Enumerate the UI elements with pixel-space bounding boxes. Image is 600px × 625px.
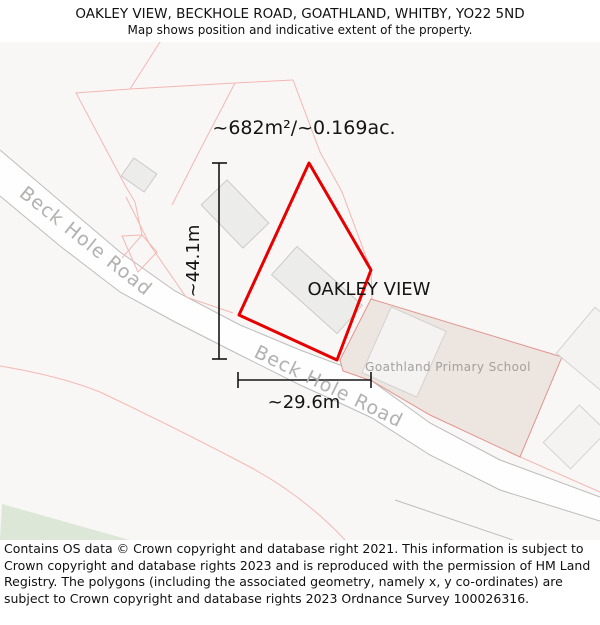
road-edge-extra xyxy=(395,500,513,540)
dim-vertical-label: ~44.1m xyxy=(183,225,204,298)
building-2 xyxy=(201,180,269,248)
area-label: ~682m²/~0.169ac. xyxy=(212,117,395,139)
page-subtitle: Map shows position and indicative extent… xyxy=(0,23,600,39)
school-label: Goathland Primary School xyxy=(365,360,531,374)
footer-copyright: Contains OS data © Crown copyright and d… xyxy=(4,541,592,607)
map-svg: ~682m²/~0.169ac. OAKLEY VIEW ~44.1m ~29.… xyxy=(0,42,600,540)
building-southeast xyxy=(543,405,600,469)
building-school-east xyxy=(556,307,600,401)
header: OAKLEY VIEW, BECKHOLE ROAD, GOATHLAND, W… xyxy=(0,5,600,39)
page-title: OAKLEY VIEW, BECKHOLE ROAD, GOATHLAND, W… xyxy=(0,5,600,23)
road-label-1: Beck Hole Road xyxy=(15,182,156,301)
map-canvas: ~682m²/~0.169ac. OAKLEY VIEW ~44.1m ~29.… xyxy=(0,42,600,540)
page: OAKLEY VIEW, BECKHOLE ROAD, GOATHLAND, W… xyxy=(0,0,600,625)
property-name-label: OAKLEY VIEW xyxy=(308,279,431,300)
green-area xyxy=(0,504,130,540)
building-1 xyxy=(121,158,157,192)
road-surface xyxy=(0,150,600,521)
parcel-line-north xyxy=(130,80,293,89)
